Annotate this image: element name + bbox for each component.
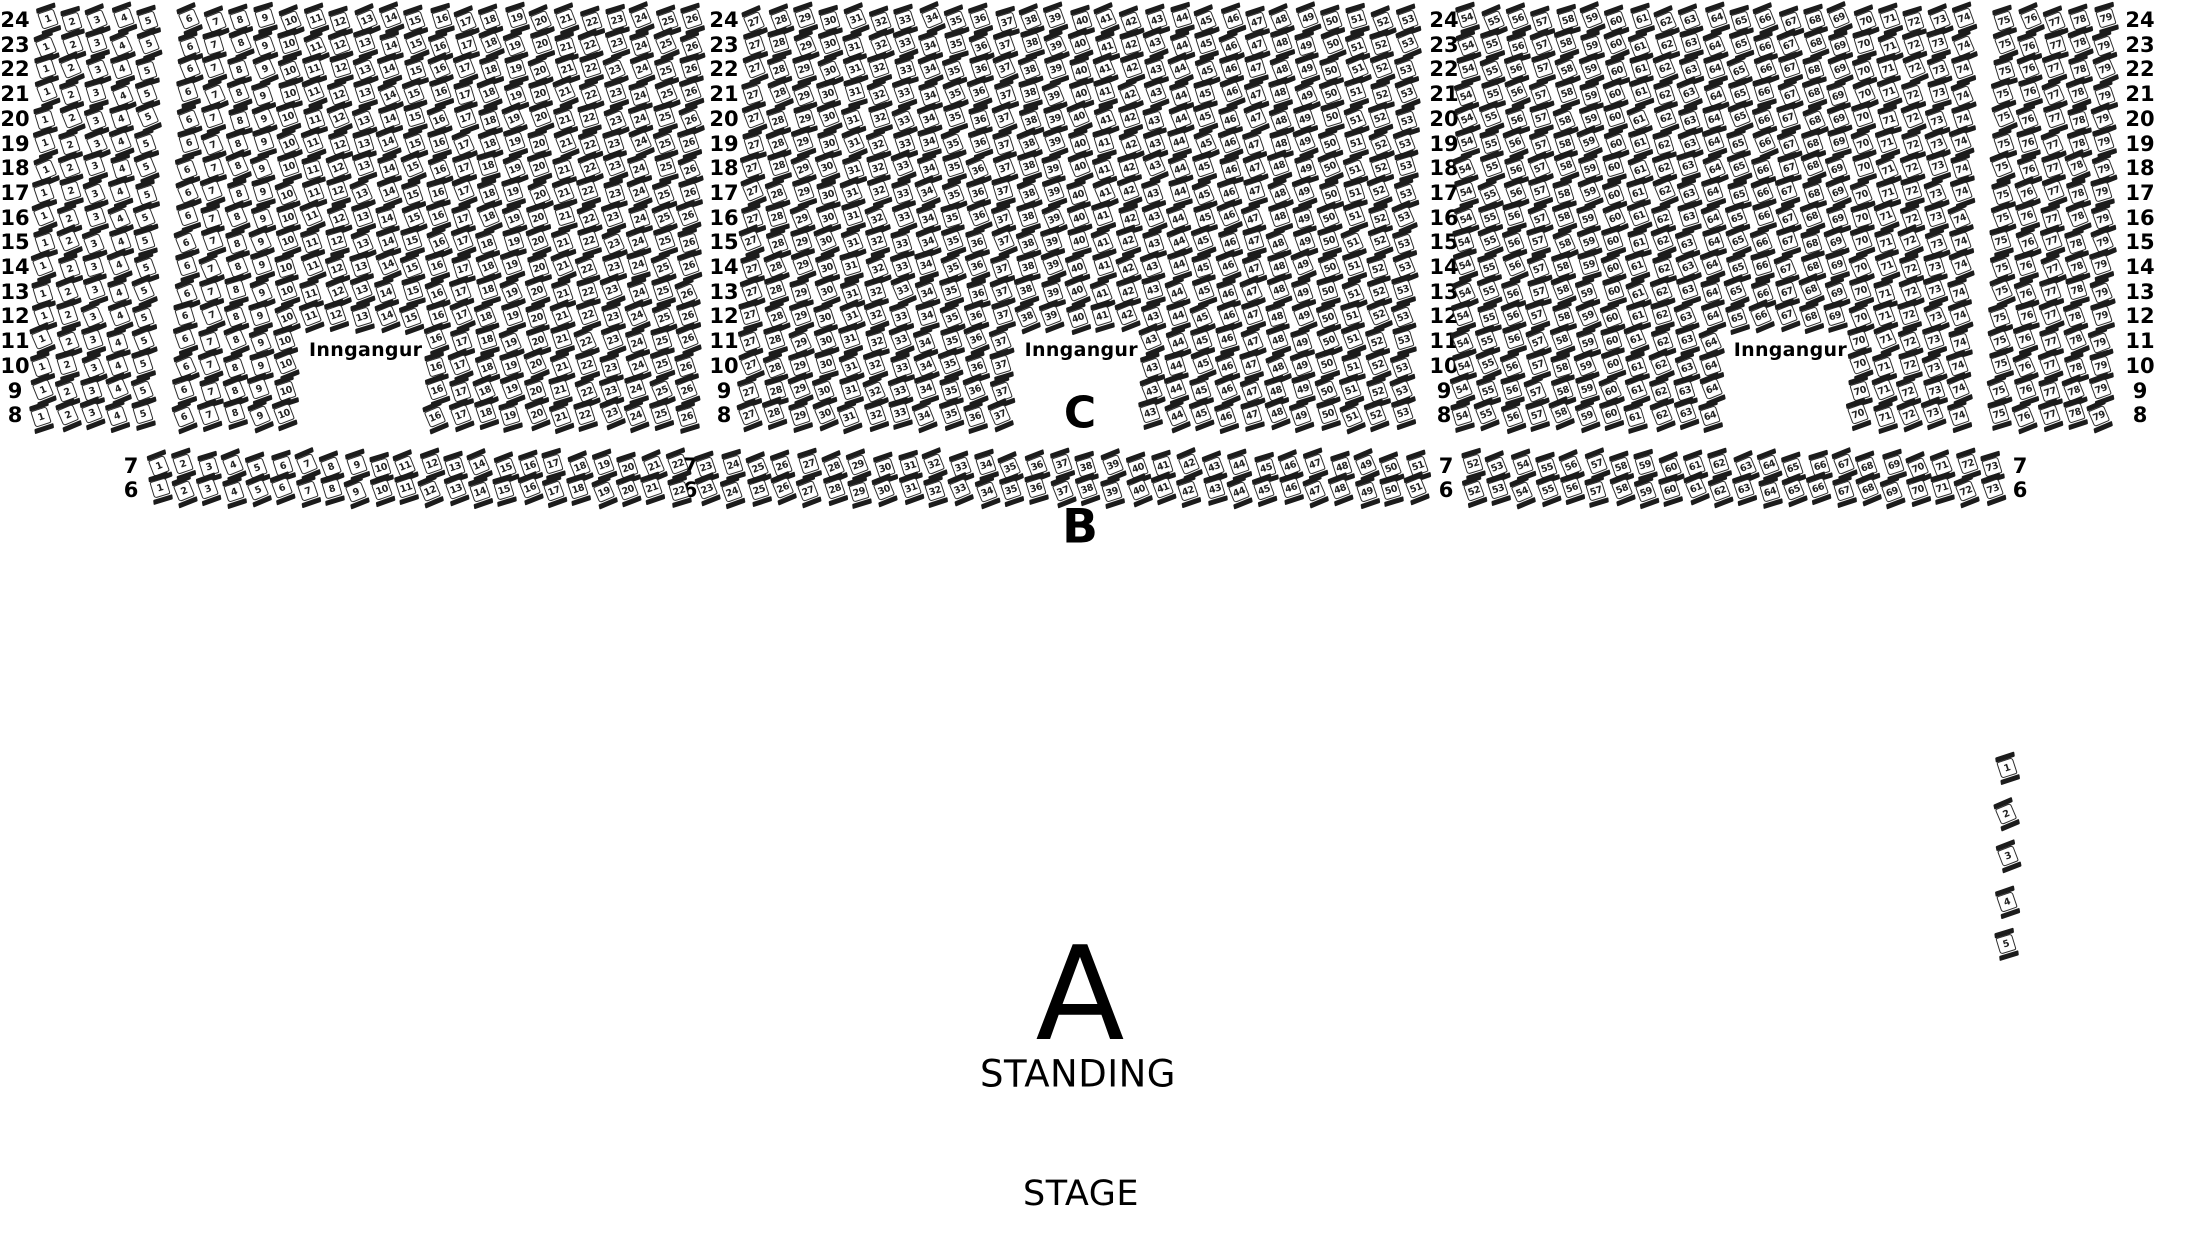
seat[interactable]: 67	[1776, 304, 1798, 326]
seat[interactable]: 65	[1728, 156, 1750, 178]
seat[interactable]: 56	[1507, 8, 1529, 30]
seat[interactable]: 74	[1948, 378, 1970, 400]
seat[interactable]: 76	[2013, 406, 2035, 428]
seat[interactable]: 33	[892, 183, 913, 204]
seat[interactable]: 27	[742, 84, 763, 105]
seat[interactable]: 36	[964, 379, 986, 401]
seat[interactable]: 74	[1953, 7, 1975, 29]
seat[interactable]: 23	[696, 478, 718, 500]
seat[interactable]: 77	[2041, 230, 2063, 252]
seat[interactable]: 59	[1580, 58, 1602, 80]
seat[interactable]: 46	[1215, 406, 1237, 428]
seat[interactable]: 28	[763, 402, 785, 424]
seat[interactable]: 34	[915, 378, 937, 400]
seat[interactable]: 19	[501, 281, 523, 303]
seat[interactable]: 33	[949, 478, 971, 500]
seat[interactable]: 18	[479, 110, 500, 131]
seat[interactable]: 22	[579, 231, 600, 252]
seat[interactable]: 31	[838, 406, 860, 428]
seat[interactable]: 9	[248, 378, 270, 400]
seat[interactable]: 57	[1528, 258, 1550, 280]
seat[interactable]: 52	[1368, 180, 1390, 202]
seat[interactable]: 59	[1575, 355, 1597, 377]
seat[interactable]: 52	[1368, 258, 1389, 279]
seat[interactable]: 58	[1611, 478, 1633, 500]
seat[interactable]: 30	[816, 353, 837, 374]
seat[interactable]: 28	[769, 82, 791, 104]
seat[interactable]: 38	[1021, 32, 1042, 53]
seat[interactable]: 66	[1753, 131, 1775, 153]
seat[interactable]: 78	[2069, 32, 2091, 54]
seat[interactable]: 4	[109, 305, 131, 327]
seat[interactable]: 12	[330, 57, 351, 78]
seat[interactable]: 21	[641, 477, 663, 499]
seat[interactable]: 64	[1705, 58, 1726, 79]
seat[interactable]: 39	[1044, 131, 1066, 153]
seat[interactable]: 65	[1730, 10, 1751, 31]
seat[interactable]: 69	[1829, 35, 1851, 57]
seat[interactable]: 6	[271, 477, 293, 499]
seat[interactable]: 33	[893, 206, 915, 228]
seat[interactable]: 51	[1345, 81, 1367, 103]
seat[interactable]: 19	[593, 481, 615, 503]
seat[interactable]: 30	[817, 184, 838, 205]
seat[interactable]: 15	[404, 106, 425, 127]
seat[interactable]: 59	[1579, 255, 1600, 276]
seat[interactable]: 25	[748, 479, 769, 500]
seat[interactable]: 78	[2067, 279, 2088, 300]
seat[interactable]: 56	[1561, 477, 1583, 499]
seat[interactable]: 2	[56, 404, 78, 426]
seat[interactable]: 25	[653, 206, 675, 228]
seat[interactable]: 68	[1801, 206, 1823, 228]
seat[interactable]: 10	[279, 33, 300, 54]
seat[interactable]: 46	[1219, 132, 1241, 154]
seat[interactable]: 67	[1832, 453, 1854, 475]
seat[interactable]: 34	[913, 405, 935, 427]
seat[interactable]: 8	[225, 329, 247, 351]
seat[interactable]: 13	[353, 110, 375, 132]
seat[interactable]: 10	[274, 353, 296, 375]
seat[interactable]: 62	[1708, 453, 1729, 474]
seat[interactable]: 38	[1019, 83, 1040, 104]
seat[interactable]: 69	[1827, 85, 1848, 106]
seat[interactable]: 64	[1703, 131, 1725, 153]
seat[interactable]: 67	[1776, 281, 1797, 302]
seat[interactable]: 68	[1800, 306, 1822, 328]
seat[interactable]: 11	[303, 81, 325, 103]
seat[interactable]: 49	[1293, 181, 1315, 203]
seat[interactable]: 77	[2039, 404, 2061, 426]
seat[interactable]: 74	[1949, 305, 1971, 327]
seat[interactable]: 30	[873, 479, 895, 501]
seat[interactable]: 19	[504, 131, 526, 153]
seat[interactable]: 8	[225, 279, 246, 300]
seat[interactable]: 37	[992, 304, 1013, 325]
seat[interactable]: 60	[1602, 330, 1623, 351]
seat[interactable]: 16	[427, 205, 449, 227]
seat[interactable]: 76	[2015, 379, 2037, 401]
seat[interactable]: 61	[1625, 406, 1646, 427]
seat[interactable]: 35	[945, 10, 967, 32]
seat[interactable]: 70	[1853, 157, 1874, 178]
seat[interactable]: 9	[250, 305, 271, 326]
seat[interactable]: 37	[1052, 480, 1074, 502]
seat[interactable]: 44	[1228, 481, 1250, 503]
seat[interactable]: 1	[36, 81, 58, 103]
seat[interactable]: 55	[1479, 229, 1501, 251]
seat[interactable]: 53	[1393, 330, 1414, 351]
seat[interactable]: 9	[254, 131, 275, 152]
seat[interactable]: 27	[743, 107, 765, 129]
seat[interactable]: 11	[300, 305, 322, 327]
seat[interactable]: 14	[375, 282, 397, 304]
seat[interactable]: 46	[1217, 255, 1239, 277]
seat[interactable]: 25	[652, 280, 673, 301]
seat[interactable]: 69	[1828, 131, 1849, 152]
seat[interactable]: 14	[378, 58, 400, 80]
seat[interactable]: 47	[1242, 304, 1264, 326]
seat[interactable]: 48	[1329, 478, 1351, 500]
seat[interactable]: 57	[1526, 404, 1547, 425]
seat[interactable]: 49	[1355, 454, 1377, 476]
seat[interactable]: 60	[1605, 33, 1627, 55]
seat[interactable]: 74	[1950, 254, 1972, 276]
seat[interactable]: 53	[1392, 279, 1413, 300]
seat[interactable]: 48	[1268, 155, 1290, 177]
seat[interactable]: 76	[2017, 109, 2039, 131]
seat[interactable]: 56	[1502, 406, 1524, 428]
seat[interactable]: 79	[2096, 8, 2117, 29]
seat[interactable]: 39	[1040, 305, 1062, 327]
seat[interactable]: 64	[1700, 378, 1722, 400]
seat[interactable]: 7	[201, 180, 223, 202]
seat[interactable]: 65	[1729, 106, 1751, 128]
seat[interactable]: 53	[1395, 156, 1416, 177]
seat[interactable]: 39	[1045, 34, 1067, 56]
seat[interactable]: 27	[741, 180, 763, 202]
seat[interactable]: 14	[377, 131, 399, 153]
seat[interactable]: 32	[869, 107, 890, 128]
seat[interactable]: 76	[2020, 8, 2042, 30]
seat[interactable]: 62	[1650, 354, 1672, 376]
seat[interactable]: 39	[1101, 481, 1122, 502]
seat[interactable]: 24	[626, 304, 648, 326]
seat[interactable]: 17	[449, 354, 471, 376]
seat[interactable]: 54	[1456, 131, 1478, 153]
seat[interactable]: 75	[1991, 156, 2013, 178]
seat[interactable]: 41	[1092, 306, 1113, 327]
seat[interactable]: 63	[1677, 279, 1699, 301]
seat[interactable]: 6	[177, 82, 198, 103]
seat[interactable]: 59	[1635, 481, 1657, 503]
seat[interactable]: 21	[554, 109, 576, 131]
seat[interactable]: 4	[110, 131, 132, 153]
seat[interactable]: 53	[1487, 478, 1508, 499]
seat[interactable]: 64	[1702, 181, 1724, 203]
seat[interactable]: 22	[574, 404, 595, 425]
seat[interactable]: 64	[1758, 454, 1780, 476]
seat[interactable]: 49	[1296, 58, 1318, 80]
seat[interactable]: 30	[818, 106, 840, 128]
seat[interactable]: 4	[222, 454, 244, 476]
seat[interactable]: 25	[654, 230, 676, 252]
seat[interactable]: 7	[200, 281, 222, 303]
seat[interactable]: 17	[452, 230, 474, 252]
seat[interactable]: 19	[502, 181, 523, 202]
seat[interactable]: 79	[2093, 131, 2114, 152]
seat[interactable]: 45	[1192, 230, 1214, 252]
seat[interactable]: 14	[469, 481, 491, 503]
seat[interactable]: 12	[326, 231, 347, 252]
seat[interactable]: 62	[1655, 107, 1677, 129]
seat[interactable]: 55	[1481, 156, 1503, 178]
seat[interactable]: 71	[1876, 132, 1898, 154]
seat[interactable]: 66	[1807, 477, 1829, 499]
seat[interactable]: 79	[2090, 254, 2112, 276]
seat[interactable]: 75	[1989, 404, 2010, 425]
seat[interactable]: 24	[630, 7, 652, 29]
seat[interactable]: 78	[2066, 155, 2088, 177]
seat[interactable]: 60	[1605, 106, 1626, 127]
seat[interactable]: 51	[1340, 379, 1362, 401]
seat[interactable]: 62	[1654, 57, 1676, 79]
seat[interactable]: 5	[1996, 933, 2017, 954]
seat[interactable]: 8	[224, 357, 246, 379]
seat[interactable]: 63	[1678, 156, 1699, 177]
seat[interactable]: 76	[2019, 82, 2040, 103]
seat[interactable]: 74	[1952, 58, 1974, 80]
seat[interactable]: 71	[1875, 328, 1897, 350]
seat[interactable]: 2	[62, 11, 83, 32]
seat[interactable]: 34	[917, 305, 938, 326]
seat[interactable]: 77	[2043, 57, 2065, 79]
seat[interactable]: 60	[1602, 257, 1624, 279]
seat[interactable]: 15	[400, 307, 422, 329]
seat[interactable]: 43	[1139, 403, 1160, 424]
seat[interactable]: 15	[493, 479, 514, 500]
seat[interactable]: 74	[1951, 181, 1973, 203]
seat[interactable]: 75	[1992, 106, 2014, 128]
seat[interactable]: 5	[134, 207, 156, 229]
seat[interactable]: 17	[454, 84, 475, 105]
seat[interactable]: 49	[1292, 378, 1313, 399]
seat[interactable]: 45	[1190, 403, 1212, 425]
seat[interactable]: 18	[480, 32, 502, 54]
seat[interactable]: 10	[371, 479, 393, 501]
seat[interactable]: 32	[864, 354, 886, 376]
seat[interactable]: 39	[1102, 454, 1124, 476]
seat[interactable]: 41	[1095, 8, 1117, 30]
seat[interactable]: 70	[1852, 230, 1874, 252]
seat[interactable]: 42	[1177, 480, 1199, 502]
seat[interactable]: 47	[1245, 107, 1267, 129]
seat[interactable]: 54	[1457, 58, 1478, 79]
seat[interactable]: 63	[1675, 402, 1697, 424]
seat[interactable]: 62	[1652, 230, 1674, 252]
seat[interactable]: 1	[34, 132, 56, 154]
seat[interactable]: 56	[1504, 132, 1526, 154]
seat[interactable]: 69	[1881, 481, 1903, 503]
seat[interactable]: 6	[175, 328, 197, 350]
seat[interactable]: 66	[1749, 305, 1771, 327]
seat[interactable]: 22	[579, 107, 600, 128]
seat[interactable]: 34	[916, 282, 938, 304]
seat[interactable]: 20	[527, 229, 549, 251]
seat[interactable]: 4	[109, 181, 131, 203]
seat[interactable]: 43	[1143, 206, 1165, 228]
seat[interactable]: 57	[1526, 304, 1548, 326]
seat[interactable]: 73	[1927, 32, 1948, 53]
seat[interactable]: 26	[679, 132, 701, 154]
seat[interactable]: 17	[453, 180, 475, 202]
seat[interactable]: 13	[445, 478, 467, 500]
seat[interactable]: 56	[1505, 81, 1527, 103]
seat[interactable]: 39	[1043, 85, 1065, 107]
seat[interactable]: 63	[1678, 183, 1700, 205]
seat[interactable]: 64	[1706, 7, 1728, 29]
seat[interactable]: 2	[57, 281, 79, 303]
seat[interactable]: 49	[1356, 481, 1378, 503]
seat[interactable]: 3	[84, 156, 106, 178]
seat[interactable]: 10	[273, 403, 295, 425]
seat[interactable]: 61	[1630, 81, 1652, 103]
seat[interactable]: 41	[1093, 132, 1114, 153]
seat[interactable]: 29	[790, 305, 812, 327]
seat[interactable]: 37	[988, 404, 1010, 426]
seat[interactable]: 49	[1290, 405, 1312, 427]
seat[interactable]: 14	[378, 181, 400, 203]
seat[interactable]: 39	[1044, 7, 1066, 29]
seat[interactable]: 36	[1025, 478, 1046, 499]
seat[interactable]: 70	[1849, 353, 1871, 375]
seat[interactable]: 76	[2014, 328, 2036, 350]
seat[interactable]: 15	[402, 156, 424, 178]
seat[interactable]: 19	[501, 355, 522, 376]
seat[interactable]: 59	[1576, 378, 1597, 399]
seat[interactable]: 6	[178, 8, 200, 30]
seat[interactable]: 22	[578, 180, 600, 202]
seat[interactable]: 48	[1271, 32, 1293, 54]
seat[interactable]: 3	[81, 402, 103, 424]
seat[interactable]: 21	[553, 81, 575, 103]
seat[interactable]: 11	[301, 205, 323, 227]
seat[interactable]: 60	[1602, 230, 1624, 252]
seat[interactable]: 23	[602, 329, 624, 351]
seat[interactable]: 8	[321, 478, 342, 499]
seat[interactable]: 21	[554, 205, 575, 226]
seat[interactable]: 68	[1857, 478, 1879, 500]
seat[interactable]: 9	[249, 405, 271, 427]
seat[interactable]: 50	[1316, 353, 1338, 375]
seat[interactable]: 63	[1676, 329, 1697, 350]
seat[interactable]: 44	[1168, 131, 1189, 152]
seat[interactable]: 20	[528, 156, 550, 178]
seat[interactable]: 34	[976, 481, 998, 503]
seat[interactable]: 48	[1267, 329, 1289, 351]
seat[interactable]: 3	[84, 279, 106, 301]
seat[interactable]: 45	[1193, 257, 1214, 278]
seat[interactable]: 73	[1982, 478, 2004, 500]
seat[interactable]: 48	[1265, 402, 1287, 424]
seat[interactable]: 24	[630, 131, 652, 153]
seat[interactable]: 18	[478, 82, 500, 104]
seat[interactable]: 40	[1068, 106, 1090, 128]
seat[interactable]: 65	[1726, 307, 1747, 328]
seat[interactable]: 39	[1042, 254, 1064, 276]
seat[interactable]: 66	[1753, 205, 1774, 226]
seat[interactable]: 33	[890, 329, 912, 351]
seat[interactable]: 4	[111, 34, 133, 56]
seat[interactable]: 13	[355, 82, 376, 103]
seat[interactable]: 79	[2090, 355, 2111, 376]
seat[interactable]: 6	[173, 406, 195, 428]
seat[interactable]: 28	[764, 329, 785, 350]
seat[interactable]: 7	[297, 480, 319, 502]
seat[interactable]: 52	[1369, 107, 1391, 129]
seat[interactable]: 75	[1991, 280, 2013, 302]
seat[interactable]: 5	[132, 280, 154, 302]
seat[interactable]: 50	[1381, 479, 1402, 500]
seat[interactable]: 61	[1626, 356, 1647, 377]
seat[interactable]: 78	[2065, 329, 2087, 351]
seat[interactable]: 51	[1405, 477, 1427, 499]
seat[interactable]: 10	[277, 106, 299, 128]
seat[interactable]: 9	[347, 454, 369, 476]
seat[interactable]: 79	[2091, 305, 2112, 326]
seat[interactable]: 42	[1178, 453, 1200, 475]
seat[interactable]: 26	[676, 356, 697, 377]
seat[interactable]: 21	[552, 255, 574, 277]
seat[interactable]: 23	[604, 155, 626, 177]
seat[interactable]: 10	[275, 257, 296, 278]
seat[interactable]: 24	[721, 481, 743, 503]
seat[interactable]: 77	[2044, 107, 2066, 129]
seat[interactable]: 33	[892, 155, 914, 177]
seat[interactable]: 9	[345, 481, 367, 503]
seat[interactable]: 75	[1990, 353, 2011, 374]
seat[interactable]: 40	[1068, 207, 1090, 229]
seat[interactable]: 2	[1995, 803, 2017, 825]
seat[interactable]: 72	[1903, 34, 1925, 56]
seat[interactable]: 55	[1477, 353, 1499, 375]
seat[interactable]: 58	[1551, 329, 1573, 351]
seat[interactable]: 26	[676, 379, 698, 401]
seat[interactable]: 14	[376, 304, 398, 326]
seat[interactable]: 6	[176, 255, 197, 276]
seat[interactable]: 13	[354, 32, 376, 54]
seat[interactable]: 45	[1193, 156, 1215, 178]
seat[interactable]: 43	[1204, 478, 1225, 499]
seat[interactable]: 64	[1700, 355, 1722, 377]
seat[interactable]: 17	[455, 107, 477, 129]
seat[interactable]: 10	[277, 207, 298, 228]
seat[interactable]: 7	[202, 230, 224, 252]
seat[interactable]: 64	[1703, 108, 1724, 129]
seat[interactable]: 70	[1853, 33, 1874, 54]
seat[interactable]: 70	[1850, 280, 1872, 302]
seat[interactable]: 31	[842, 131, 864, 153]
seat[interactable]: 5	[136, 106, 158, 128]
seat[interactable]: 22	[580, 57, 601, 78]
seat[interactable]: 27	[739, 304, 760, 325]
seat[interactable]: 24	[628, 181, 650, 203]
seat[interactable]: 17	[450, 404, 472, 426]
seat[interactable]: 31	[900, 477, 922, 499]
seat[interactable]: 58	[1555, 32, 1577, 54]
seat[interactable]: 53	[1397, 32, 1419, 54]
seat[interactable]: 50	[1319, 156, 1341, 178]
